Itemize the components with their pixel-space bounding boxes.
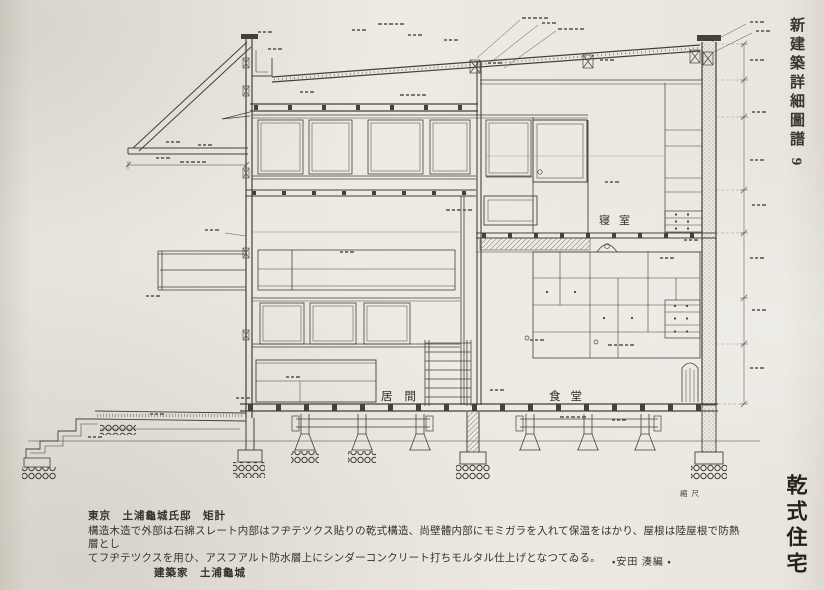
left-canopy xyxy=(126,42,251,169)
floor-structure xyxy=(240,190,718,411)
terrace-steps xyxy=(22,411,246,480)
plate-title: 乾式住宅 xyxy=(781,474,811,578)
caption-architect: 建築家 土浦龜城 xyxy=(154,567,743,581)
foundation-piers xyxy=(28,405,760,480)
upper-windows xyxy=(252,115,664,225)
book-page: 居間 食堂 寝室 縮尺 新建築詳細圖譜 9 乾式住宅 東京 土浦龜城氏邸 矩計 … xyxy=(0,0,824,590)
caption-block: 東京 土浦龜城氏邸 矩計 構造木造で外部は石綿スレート内部はフヂテツクス貼りの乾… xyxy=(88,510,743,581)
caption-body-line1: 構造木造で外部は石綿スレート内部はフヂテツクス貼りの乾式構造、尚壁體内部にモミガ… xyxy=(88,525,743,552)
room-label-living: 居間 xyxy=(381,390,428,403)
left-balcony xyxy=(146,251,246,296)
roof-structure xyxy=(222,45,702,119)
caption-location: 東京 土浦龜城氏邸 矩計 xyxy=(88,510,743,524)
lower-windows xyxy=(252,298,460,347)
room-label-dining: 食堂 xyxy=(549,390,592,403)
section-drawing: 居間 食堂 寝室 縮尺 xyxy=(0,0,824,590)
dimension-lines xyxy=(716,41,748,407)
scale-note: 縮尺 xyxy=(680,488,703,498)
editor-credit: ・安田 湊編 ・ xyxy=(612,553,672,568)
room-label-bedroom: 寝室 xyxy=(599,214,639,227)
journal-title: 新建築詳細圖譜 9 xyxy=(786,17,807,169)
